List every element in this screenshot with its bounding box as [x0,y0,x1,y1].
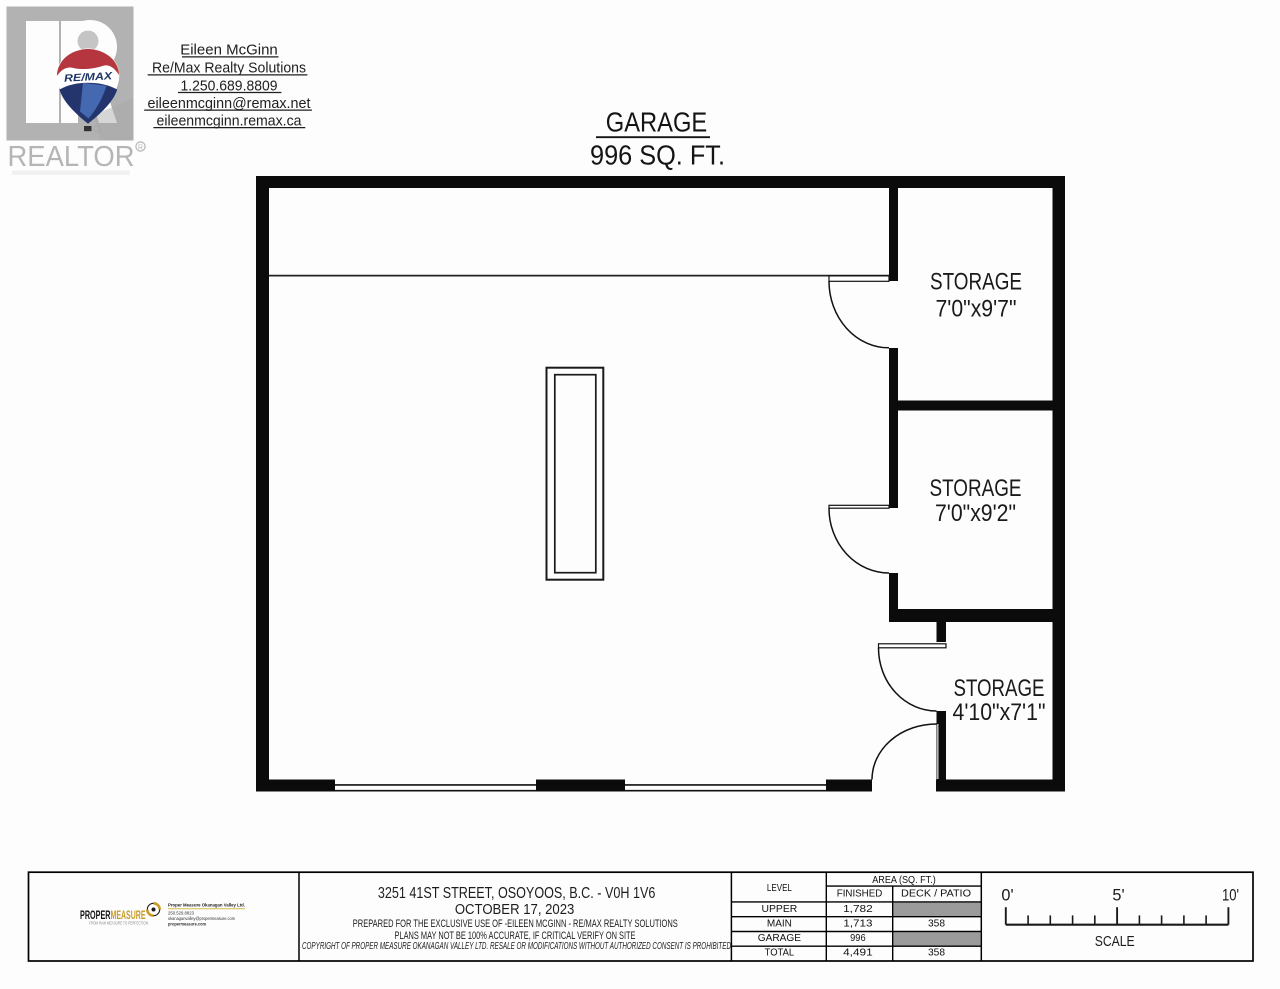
svg-text:REALTOR: REALTOR [8,141,135,173]
svg-text:COPYRIGHT OF PROPER MEASURE OK: COPYRIGHT OF PROPER MEASURE OKANAGAN VAL… [302,941,731,952]
svg-text:SCALE: SCALE [1095,934,1135,950]
svg-text:DECK / PATIO: DECK / PATIO [901,889,971,900]
svg-text:RE/MAX: RE/MAX [64,70,114,85]
svg-text:Re/Max Realty Solutions: Re/Max Realty Solutions [152,60,306,77]
svg-text:MAIN: MAIN [767,919,792,930]
svg-text:Eileen McGinn: Eileen McGinn [180,41,278,58]
svg-text:1.250.689.8809: 1.250.689.8809 [181,77,278,94]
svg-text:STORAGE: STORAGE [954,675,1045,702]
svg-text:996 SQ. FT.: 996 SQ. FT. [590,140,725,171]
svg-text:4,491: 4,491 [843,948,873,959]
svg-text:5': 5' [1112,886,1124,904]
svg-text:358: 358 [928,948,945,959]
svg-text:AREA (SQ. FT.): AREA (SQ. FT.) [872,875,936,886]
svg-text:PREPARED FOR THE EXCLUSIVE USE: PREPARED FOR THE EXCLUSIVE USE OF -EILEE… [353,918,678,930]
svg-text:1,782: 1,782 [843,904,873,915]
svg-text:GARAGE: GARAGE [758,933,802,944]
svg-text:358: 358 [928,919,945,930]
svg-text:STORAGE: STORAGE [930,268,1022,295]
svg-text:Proper Measure Okanagan Valley: Proper Measure Okanagan Valley Ltd. [168,903,245,908]
svg-text:LEVEL: LEVEL [767,883,792,894]
svg-text:TOTAL: TOTAL [765,948,795,959]
svg-text:UPPER: UPPER [762,904,798,915]
svg-text:FROM RAW MEASURE TO PERFECTION: FROM RAW MEASURE TO PERFECTION [89,921,148,926]
svg-text:STORAGE: STORAGE [930,475,1022,502]
svg-text:R: R [138,144,143,151]
svg-text:7'0"x9'2": 7'0"x9'2" [935,500,1016,527]
svg-text:0': 0' [1001,886,1013,904]
svg-text:GARAGE: GARAGE [606,106,708,137]
svg-text:10': 10' [1222,886,1239,904]
svg-text:996: 996 [850,933,866,944]
svg-text:propermeasure.com: propermeasure.com [168,922,206,927]
svg-text:OCTOBER 17, 2023: OCTOBER 17, 2023 [455,902,575,918]
svg-text:FINISHED: FINISHED [837,889,883,900]
svg-text:3251 41ST STREET, OSOYOOS, B.C: 3251 41ST STREET, OSOYOOS, B.C. - V0H 1V… [378,885,656,902]
svg-text:1,713: 1,713 [843,919,872,930]
svg-text:250.529.8823: 250.529.8823 [168,910,195,915]
svg-text:eileenmcginn@remax.net: eileenmcginn@remax.net [148,95,312,112]
svg-text:okanaganvalley@propermeasure.c: okanaganvalley@propermeasure.com [168,916,235,921]
svg-text:7'0"x9'7": 7'0"x9'7" [936,295,1017,322]
svg-text:4'10"x7'1": 4'10"x7'1" [953,699,1046,726]
